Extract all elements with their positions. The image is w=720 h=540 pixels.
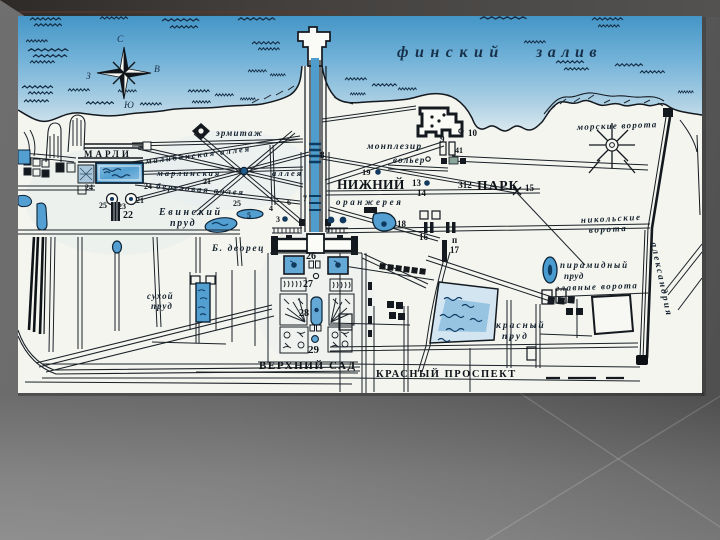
svg-text:Ю: Ю: [123, 101, 134, 111]
svg-text:4: 4: [269, 204, 273, 213]
svg-text:8: 8: [320, 150, 325, 160]
svg-text:ворота: ворота: [589, 223, 628, 235]
svg-text:монплезир: монплезир: [366, 142, 422, 152]
svg-text:пруд: пруд: [170, 218, 196, 229]
svg-text:Б. дворец: Б. дворец: [211, 243, 265, 254]
svg-text:27: 27: [303, 279, 313, 290]
svg-text:аллея: аллея: [272, 168, 303, 178]
svg-text:ПАРК: ПАРК: [477, 178, 519, 193]
svg-text:16: 16: [419, 232, 429, 242]
svg-text:НИЖНИЙ: НИЖНИЙ: [337, 177, 405, 192]
svg-text:КРАСНЫЙ ПРОСПЕКТ: КРАСНЫЙ ПРОСПЕКТ: [376, 368, 517, 380]
svg-text:6: 6: [287, 198, 291, 207]
svg-text:оранжерея: оранжерея: [336, 197, 403, 207]
svg-text:17: 17: [450, 245, 460, 255]
svg-text:сухой: сухой: [147, 291, 174, 301]
svg-text:п: п: [452, 235, 457, 245]
svg-text:Евинский: Евинский: [158, 207, 223, 218]
svg-text:25: 25: [233, 199, 241, 208]
svg-text:41: 41: [455, 146, 463, 155]
svg-text:пруд: пруд: [564, 271, 584, 281]
svg-text:7: 7: [303, 194, 307, 203]
svg-text:ВЕРХНИЙ САД: ВЕРХНИЙ САД: [259, 360, 357, 372]
svg-text:красный: красный: [496, 320, 546, 331]
svg-text:пруд: пруд: [151, 301, 173, 311]
svg-text:15: 15: [525, 183, 535, 193]
svg-text:19: 19: [362, 167, 371, 177]
svg-text:эрмитаж: эрмитаж: [215, 128, 263, 138]
svg-text:18: 18: [397, 219, 407, 229]
svg-text:МАРЛИ: МАРЛИ: [84, 149, 132, 159]
svg-text:пруд: пруд: [502, 331, 529, 342]
svg-text:3: 3: [276, 215, 280, 224]
svg-text:5: 5: [247, 211, 251, 220]
svg-text:23: 23: [118, 202, 126, 211]
svg-text:13: 13: [412, 178, 422, 188]
svg-text:14: 14: [417, 188, 427, 198]
svg-text:28: 28: [299, 308, 309, 319]
svg-text:26: 26: [306, 251, 316, 262]
svg-text:З: З: [86, 72, 91, 82]
svg-text:марлинская: марлинская: [156, 168, 221, 178]
svg-text:21: 21: [136, 196, 144, 205]
svg-text:10: 10: [468, 128, 478, 138]
svg-text:25: 25: [99, 201, 107, 210]
svg-text:пирамидный: пирамидный: [560, 260, 629, 270]
svg-text:финский: финский: [397, 44, 505, 61]
svg-text:залив: залив: [535, 44, 602, 61]
svg-text:З12: З12: [458, 180, 472, 190]
svg-text:С: С: [117, 35, 124, 45]
svg-text:24: 24: [144, 182, 152, 191]
svg-text:22: 22: [123, 210, 133, 221]
svg-text:В: В: [154, 65, 160, 75]
svg-text:вольер: вольер: [393, 155, 426, 165]
svg-text:29: 29: [308, 344, 320, 356]
